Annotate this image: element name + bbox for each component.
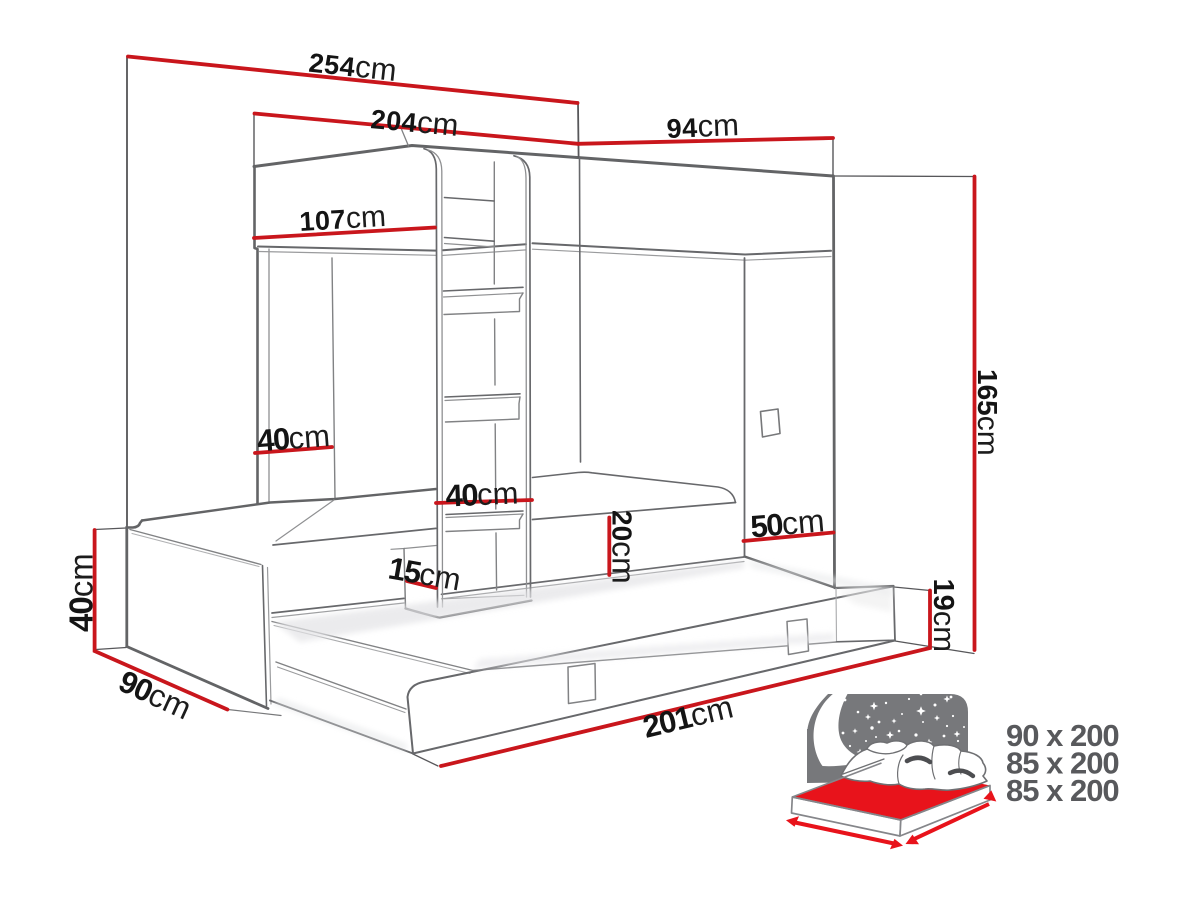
svg-text:40cm: 40cm (256, 418, 331, 459)
svg-text:107cm: 107cm (298, 200, 386, 238)
svg-text:85 x 200: 85 x 200 (1006, 773, 1119, 808)
svg-text:40cm: 40cm (445, 475, 519, 513)
svg-text:15cm: 15cm (386, 550, 464, 597)
svg-text:40cm: 40cm (63, 553, 100, 632)
svg-text:254cm: 254cm (307, 44, 398, 88)
svg-text:20cm: 20cm (606, 510, 642, 584)
svg-text:94cm: 94cm (666, 107, 740, 145)
svg-text:165cm: 165cm (971, 369, 1004, 456)
svg-text:19cm: 19cm (927, 579, 962, 653)
svg-text:204cm: 204cm (369, 100, 460, 143)
svg-text:50cm: 50cm (749, 502, 826, 544)
